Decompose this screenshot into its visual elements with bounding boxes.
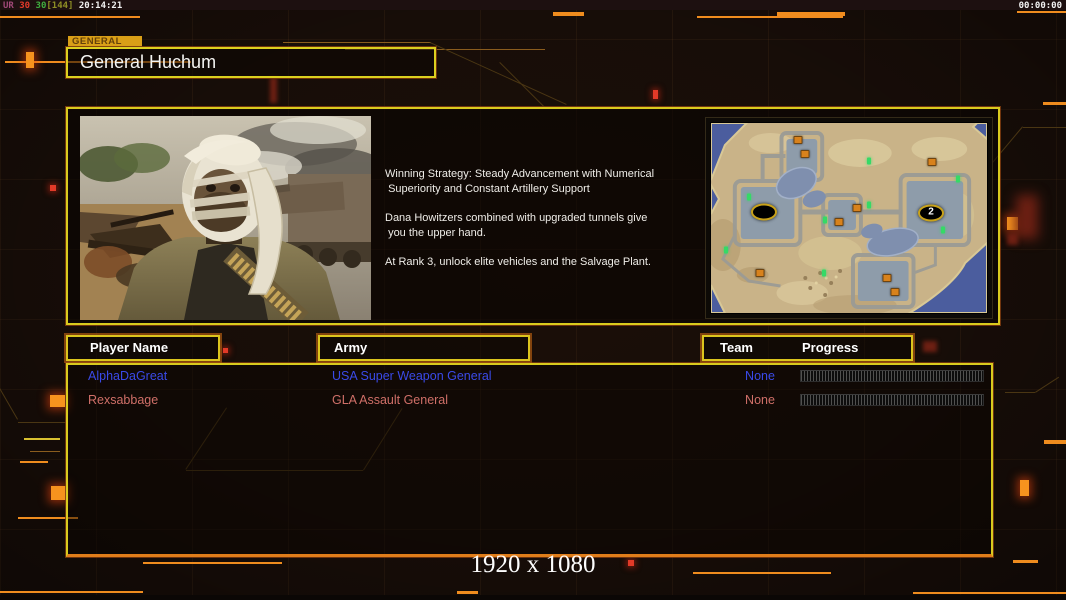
player-team: None — [724, 393, 796, 407]
top-edge-strip — [0, 0, 1066, 10]
strategy-line: Superiority and Constant Artillery Suppo… — [385, 182, 707, 197]
frame-counter-ur: UR — [3, 1, 14, 11]
map-markers-layer: 2 — [711, 123, 987, 313]
map-preview: 2 — [705, 117, 993, 319]
strategy-line: you the upper hand. — [385, 226, 707, 241]
deco-red-glow — [1016, 195, 1038, 239]
circuit-trace — [1005, 392, 1035, 393]
player-name: Rexsabbage — [88, 393, 158, 407]
player-row: AlphaDaGreat USA Super Weapon General No… — [68, 369, 991, 387]
deco-line — [283, 42, 431, 43]
column-header-player-name: Player Name — [66, 335, 220, 361]
strategy-line: Winning Strategy: Steady Advancement wit… — [385, 167, 707, 182]
deco-square — [26, 52, 34, 68]
deco-red-dot — [223, 348, 228, 353]
deco-line — [0, 16, 140, 18]
strategy-line: Dana Howitzers combined with upgraded tu… — [385, 211, 707, 226]
frame-counter-overlay: UR 30 30[144] 20:14:21 — [3, 1, 122, 11]
deco-line — [24, 438, 60, 440]
deco-line — [1043, 102, 1066, 105]
start-position-marker: 2 — [918, 205, 944, 222]
loading-progress-bar — [800, 370, 984, 382]
player-name: AlphaDaGreat — [88, 369, 167, 383]
general-portrait-art — [80, 116, 371, 320]
supply-pile-marker — [882, 274, 891, 282]
deco-line — [20, 461, 48, 463]
player-row: Rexsabbage GLA Assault General None — [68, 393, 991, 411]
general-name-box: General Huchum — [66, 47, 436, 78]
supply-pile-marker — [794, 136, 803, 144]
circuit-trace — [499, 62, 545, 108]
deco-line — [913, 592, 1066, 594]
strategy-paragraph: Dana Howitzers combined with upgraded tu… — [385, 211, 707, 240]
circuit-trace — [18, 422, 66, 423]
deco-square — [1020, 480, 1029, 496]
frame-counter-fps-a: 30 — [19, 1, 30, 11]
frame-counter-bracket: [144] — [46, 1, 73, 11]
supply-pile-marker — [756, 269, 765, 277]
supply-pile-marker — [890, 288, 899, 296]
unit-marker — [724, 246, 728, 253]
deco-line — [1017, 11, 1066, 13]
unit-marker — [867, 157, 871, 164]
map-preview-terrain: 2 — [710, 122, 988, 314]
column-header-progress: Progress — [802, 337, 858, 359]
deco-red-glow — [923, 341, 937, 352]
deco-line — [0, 591, 143, 593]
frame-counter-time: 20:14:21 — [79, 1, 122, 11]
player-army: GLA Assault General — [332, 393, 448, 407]
unit-marker — [747, 193, 751, 200]
general-portrait — [80, 116, 371, 320]
loading-screen: UR 30 30[144] 20:14:21 00:00:00 GENERAL … — [0, 0, 1066, 600]
general-info-panel: Winning Strategy: Steady Advancement wit… — [66, 107, 1000, 325]
deco-square — [51, 486, 66, 500]
bottom-edge-strip — [0, 595, 1066, 600]
deco-red-dot — [653, 90, 658, 99]
column-header-army: Army — [318, 335, 530, 361]
deco-red-glow — [270, 77, 277, 103]
supply-pile-marker — [800, 150, 809, 158]
frame-counter-fps-b: 30 — [36, 1, 47, 11]
deco-line — [553, 12, 584, 16]
circuit-trace — [1035, 377, 1059, 393]
strategy-line: At Rank 3, unlock elite vehicles and the… — [385, 255, 707, 270]
general-name: General Huchum — [68, 49, 434, 76]
column-header-team: Team — [720, 337, 753, 359]
supply-pile-marker — [835, 218, 844, 226]
deco-line — [697, 16, 843, 18]
strategy-text: Winning Strategy: Steady Advancement wit… — [385, 167, 707, 285]
circuit-trace — [430, 42, 567, 105]
column-header-team-progress: Team Progress — [702, 335, 913, 361]
deco-line — [777, 12, 845, 16]
player-army: USA Super Weapon General — [332, 369, 492, 383]
loading-progress-bar — [800, 394, 984, 406]
supply-pile-marker — [928, 158, 937, 166]
deco-line — [30, 451, 60, 452]
resolution-label: 1920 x 1080 — [0, 551, 1066, 579]
deco-square — [50, 395, 65, 407]
deco-line — [457, 591, 478, 594]
deco-line — [1044, 440, 1066, 444]
circuit-trace — [1023, 127, 1066, 128]
unit-marker — [956, 176, 960, 183]
unit-marker — [823, 217, 827, 224]
strategy-paragraph: At Rank 3, unlock elite vehicles and the… — [385, 255, 707, 270]
unit-marker — [867, 201, 871, 208]
player-list-panel: AlphaDaGreat USA Super Weapon General No… — [66, 363, 993, 557]
start-position-marker — [751, 204, 777, 221]
unit-marker — [822, 270, 826, 277]
deco-red-dot — [50, 185, 56, 191]
game-clock: 00:00:00 — [1019, 1, 1062, 11]
player-team: None — [724, 369, 796, 383]
circuit-trace — [0, 388, 18, 420]
strategy-paragraph: Winning Strategy: Steady Advancement wit… — [385, 167, 707, 196]
supply-pile-marker — [852, 204, 861, 212]
unit-marker — [941, 226, 945, 233]
